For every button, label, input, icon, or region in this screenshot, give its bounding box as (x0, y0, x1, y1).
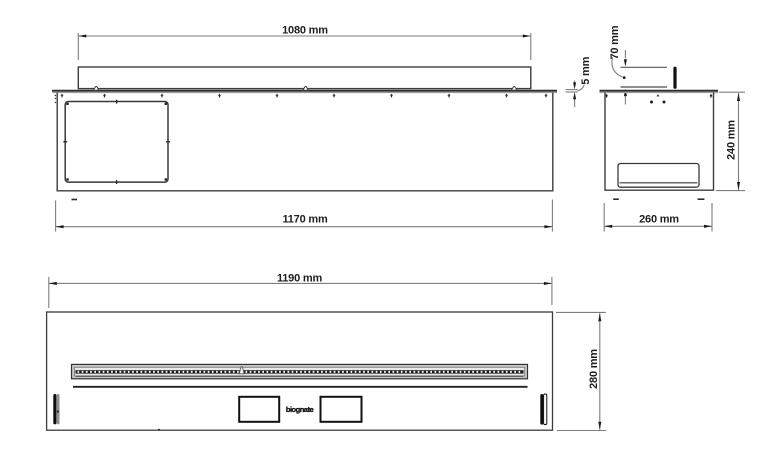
svg-text:280 mm: 280 mm (588, 349, 600, 389)
svg-text:1170 mm: 1170 mm (282, 213, 328, 225)
svg-text:1080 mm: 1080 mm (282, 24, 328, 36)
svg-text:biognate: biognate (286, 405, 314, 414)
svg-text:1190 mm: 1190 mm (277, 273, 323, 285)
svg-text:5 mm: 5 mm (580, 56, 592, 84)
svg-text:240 mm: 240 mm (725, 120, 737, 160)
svg-text:70 mm: 70 mm (609, 25, 621, 59)
svg-text:260 mm: 260 mm (639, 213, 679, 225)
